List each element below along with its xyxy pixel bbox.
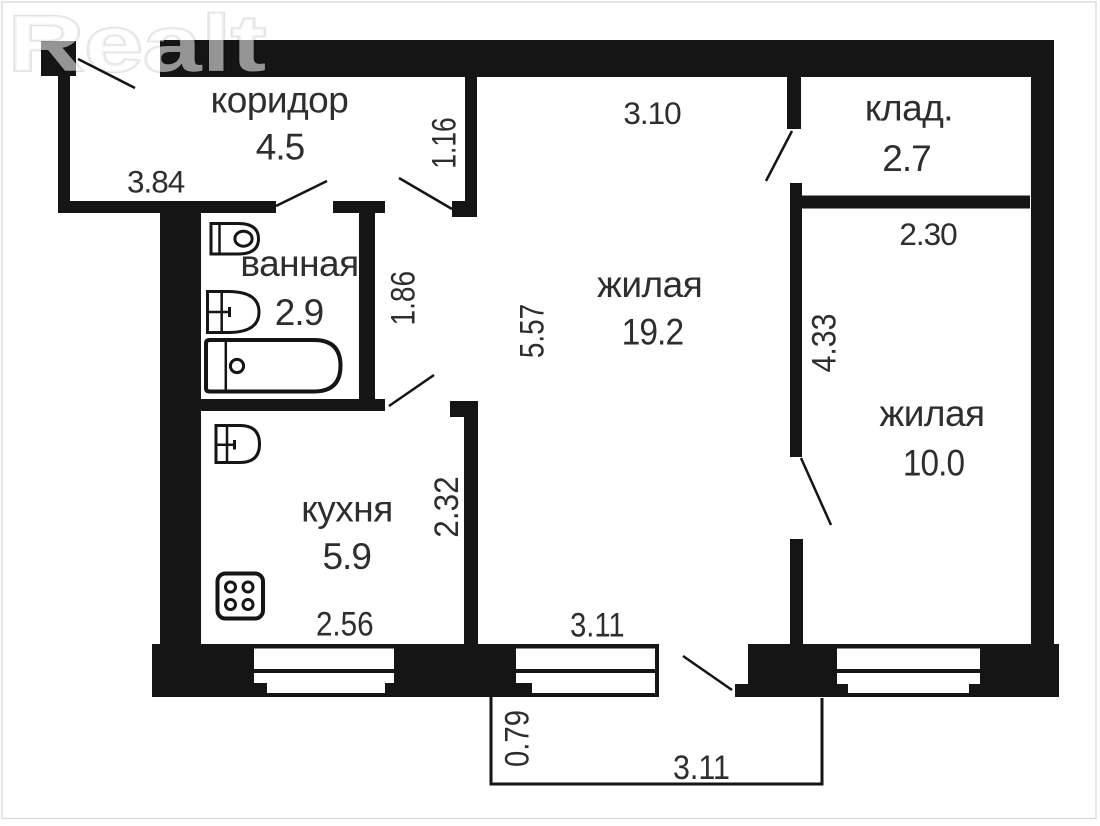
svg-text:2.32: 2.32 — [428, 476, 466, 537]
svg-text:4.5: 4.5 — [256, 127, 305, 168]
svg-text:2.7: 2.7 — [882, 138, 930, 179]
svg-text:1.16: 1.16 — [426, 117, 464, 168]
svg-text:0.79: 0.79 — [499, 710, 537, 767]
svg-text:3.11: 3.11 — [570, 607, 624, 645]
svg-text:ванная: ванная — [240, 243, 358, 284]
svg-text:19.2: 19.2 — [622, 312, 684, 353]
svg-text:Realt: Realt — [8, 0, 266, 88]
svg-text:5.57: 5.57 — [514, 304, 552, 358]
svg-text:3.10: 3.10 — [623, 95, 681, 131]
svg-text:кухня: кухня — [301, 489, 393, 530]
svg-text:2.56: 2.56 — [316, 606, 374, 644]
svg-text:1.86: 1.86 — [384, 271, 422, 326]
svg-text:3.84: 3.84 — [127, 164, 185, 200]
svg-text:3.11: 3.11 — [673, 749, 730, 787]
svg-text:10.0: 10.0 — [903, 443, 965, 484]
svg-text:4.33: 4.33 — [805, 314, 843, 373]
svg-text:жилая: жилая — [879, 393, 984, 434]
svg-text:жилая: жилая — [597, 264, 702, 305]
svg-text:5.9: 5.9 — [322, 536, 370, 577]
svg-text:клад.: клад. — [865, 88, 953, 129]
svg-text:2.30: 2.30 — [899, 216, 957, 252]
svg-text:коридор: коридор — [211, 80, 349, 121]
svg-text:2.9: 2.9 — [275, 292, 323, 333]
